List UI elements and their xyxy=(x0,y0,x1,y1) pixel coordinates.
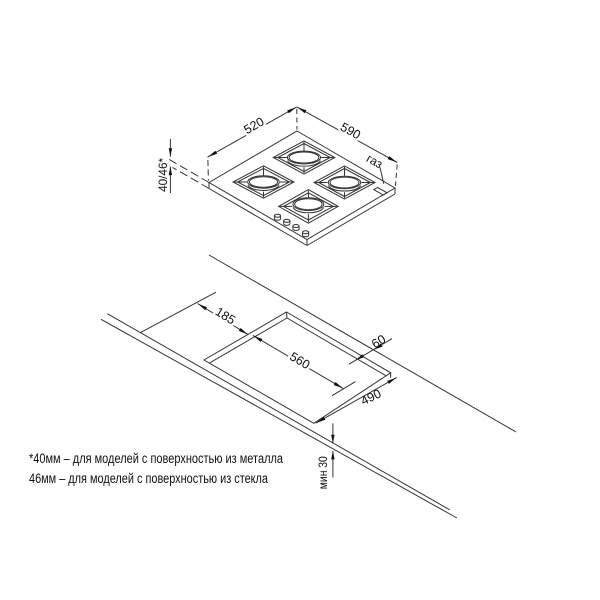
svg-text:*40мм – для моделей с поверхно: *40мм – для моделей с поверхностью из ме… xyxy=(29,451,283,466)
svg-text:60: 60 xyxy=(369,332,388,351)
svg-text:мин 30: мин 30 xyxy=(316,456,330,489)
svg-text:40/46*: 40/46* xyxy=(156,158,170,192)
svg-text:46мм – для моделей с поверхнос: 46мм – для моделей с поверхностью из сте… xyxy=(29,471,268,486)
svg-text:185: 185 xyxy=(213,305,238,328)
svg-text:490: 490 xyxy=(359,386,384,408)
svg-text:590: 590 xyxy=(338,120,363,142)
svg-text:520: 520 xyxy=(242,114,267,136)
